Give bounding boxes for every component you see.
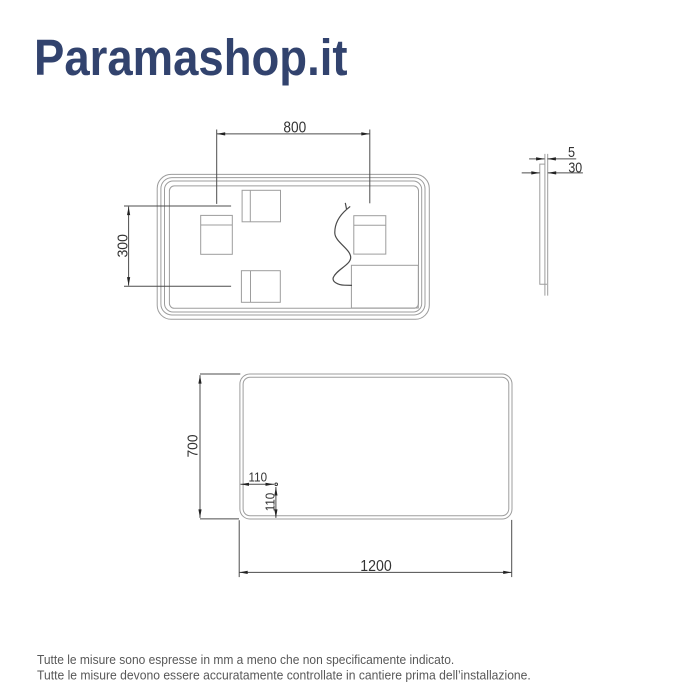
- svg-text:30: 30: [568, 160, 582, 177]
- svg-text:300: 300: [114, 234, 131, 258]
- svg-text:1200: 1200: [360, 558, 392, 575]
- svg-text:800: 800: [283, 119, 306, 136]
- svg-text:Tutte le misure sono espresse: Tutte le misure sono espresse in mm a me…: [37, 652, 454, 667]
- svg-text:Paramashop.it: Paramashop.it: [34, 29, 348, 86]
- svg-text:110: 110: [263, 493, 278, 512]
- svg-text:110: 110: [249, 470, 268, 485]
- svg-text:700: 700: [185, 435, 202, 458]
- svg-text:Tutte le misure devono essere: Tutte le misure devono essere accuratame…: [37, 668, 531, 683]
